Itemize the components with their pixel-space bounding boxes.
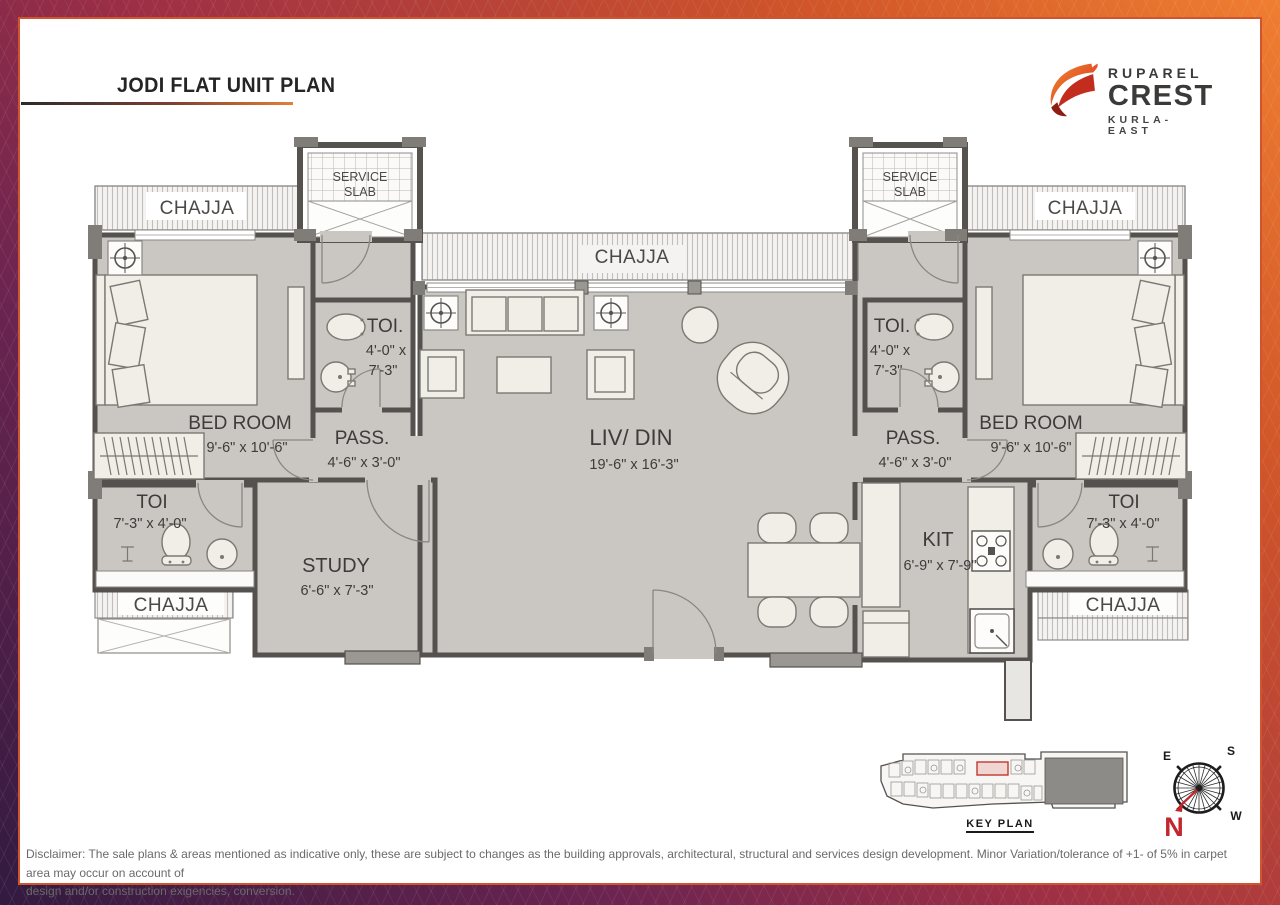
title-underline	[21, 102, 293, 105]
compass-north-label: N	[1164, 812, 1184, 842]
brand-logo: RUPAREL CREST KURLA-EAST	[1046, 58, 1216, 132]
compass-icon: E S W N	[1152, 738, 1247, 842]
key-plan-highlight-unit	[977, 762, 1008, 775]
logo-brand: RUPAREL	[1108, 66, 1216, 80]
compass-east-label: E	[1163, 749, 1171, 763]
key-plan	[875, 746, 1140, 818]
svg-text:4'-6" x 3'-0": 4'-6" x 3'-0"	[327, 455, 400, 471]
label-toi-lower-left: TOI	[136, 492, 167, 513]
disclaimer-line-1: Disclaimer: The sale plans & areas menti…	[26, 845, 1254, 882]
svg-text:4'-0" x: 4'-0" x	[366, 343, 407, 359]
ruparel-crest-logo-icon	[1046, 58, 1102, 120]
svg-text:6'-6" x 7'-3": 6'-6" x 7'-3"	[300, 583, 373, 599]
dining-chair	[810, 513, 848, 543]
label-kitchen: KIT	[922, 529, 953, 551]
label-chajja-bottom-right: CHAJJA	[1086, 595, 1161, 616]
svg-text:7'-3": 7'-3"	[369, 363, 398, 379]
svg-text:7'-3" x 4'-0": 7'-3" x 4'-0"	[113, 516, 186, 532]
threshold-bar	[770, 653, 862, 667]
logo-location: KURLA-EAST	[1108, 115, 1216, 136]
svg-text:4'-0" x: 4'-0" x	[870, 343, 911, 359]
page-frame: JODI FLAT UNIT PLAN RUPAREL CREST KURLA-…	[0, 0, 1280, 905]
kitchen-counter	[862, 483, 900, 607]
duct	[1005, 660, 1031, 720]
ceiling-fan-icon	[594, 296, 628, 330]
key-plan-block	[1045, 758, 1123, 804]
dining-table	[748, 543, 860, 597]
page-title: JODI FLAT UNIT PLAN	[117, 74, 335, 98]
compass-west-label: W	[1230, 809, 1242, 823]
key-plan-label: KEY PLAN	[955, 818, 1045, 830]
svg-text:9'-6" x 10'-6": 9'-6" x 10'-6"	[990, 440, 1071, 456]
label-living-dining: LIV/ DIN	[589, 425, 672, 450]
svg-text:7'-3" x 4'-0": 7'-3" x 4'-0"	[1086, 516, 1159, 532]
threshold-bar	[345, 651, 420, 664]
logo-text: RUPAREL CREST KURLA-EAST	[1108, 58, 1216, 136]
label-service-slab-left-2: SLAB	[344, 185, 376, 199]
label-bedroom-right: BED ROOM	[979, 413, 1082, 434]
dining-chair	[758, 513, 796, 543]
label-bedroom-left: BED ROOM	[188, 413, 291, 434]
compass-south-label: S	[1227, 744, 1235, 758]
label-passage-right: PASS.	[886, 428, 941, 449]
label-toi-upper-right: TOI.	[874, 316, 911, 337]
svg-text:4'-6" x 3'-0": 4'-6" x 3'-0"	[878, 455, 951, 471]
label-chajja-top-center: CHAJJA	[595, 247, 670, 268]
coffee-table	[497, 357, 551, 393]
label-chajja-bottom-left: CHAJJA	[134, 595, 209, 616]
disclaimer-text: Disclaimer: The sale plans & areas menti…	[26, 845, 1254, 901]
label-chajja-top-right: CHAJJA	[1048, 198, 1123, 219]
logo-name: CREST	[1108, 82, 1216, 111]
label-service-slab-right-2: SLAB	[894, 185, 926, 199]
label-study: STUDY	[302, 555, 370, 577]
label-toi-lower-right: TOI	[1108, 492, 1139, 513]
svg-text:9'-6" x 10'-6": 9'-6" x 10'-6"	[206, 440, 287, 456]
svg-text:6'-9" x 7'-9": 6'-9" x 7'-9"	[903, 558, 976, 574]
label-passage-left: PASS.	[335, 428, 390, 449]
fridge	[863, 611, 909, 657]
label-toi-upper-left: TOI.	[367, 316, 404, 337]
dining-chair	[758, 597, 796, 627]
svg-text:7'-3": 7'-3"	[874, 363, 903, 379]
disclaimer-line-2: design and/or construction exigencies, c…	[26, 882, 1254, 901]
label-service-slab-left-1: SERVICE	[333, 170, 388, 184]
floor-plan: CHAJJA CHAJJA CHAJJA CHAJJA CHAJJA SERVI…	[80, 135, 1200, 725]
service-slabs	[300, 145, 965, 240]
dining-chair	[810, 597, 848, 627]
side-table	[682, 307, 718, 343]
svg-text:19'-6" x 16'-3": 19'-6" x 16'-3"	[589, 457, 678, 473]
label-chajja-top-left: CHAJJA	[160, 198, 235, 219]
ceiling-fan-icon	[424, 296, 458, 330]
label-service-slab-right-1: SERVICE	[883, 170, 938, 184]
